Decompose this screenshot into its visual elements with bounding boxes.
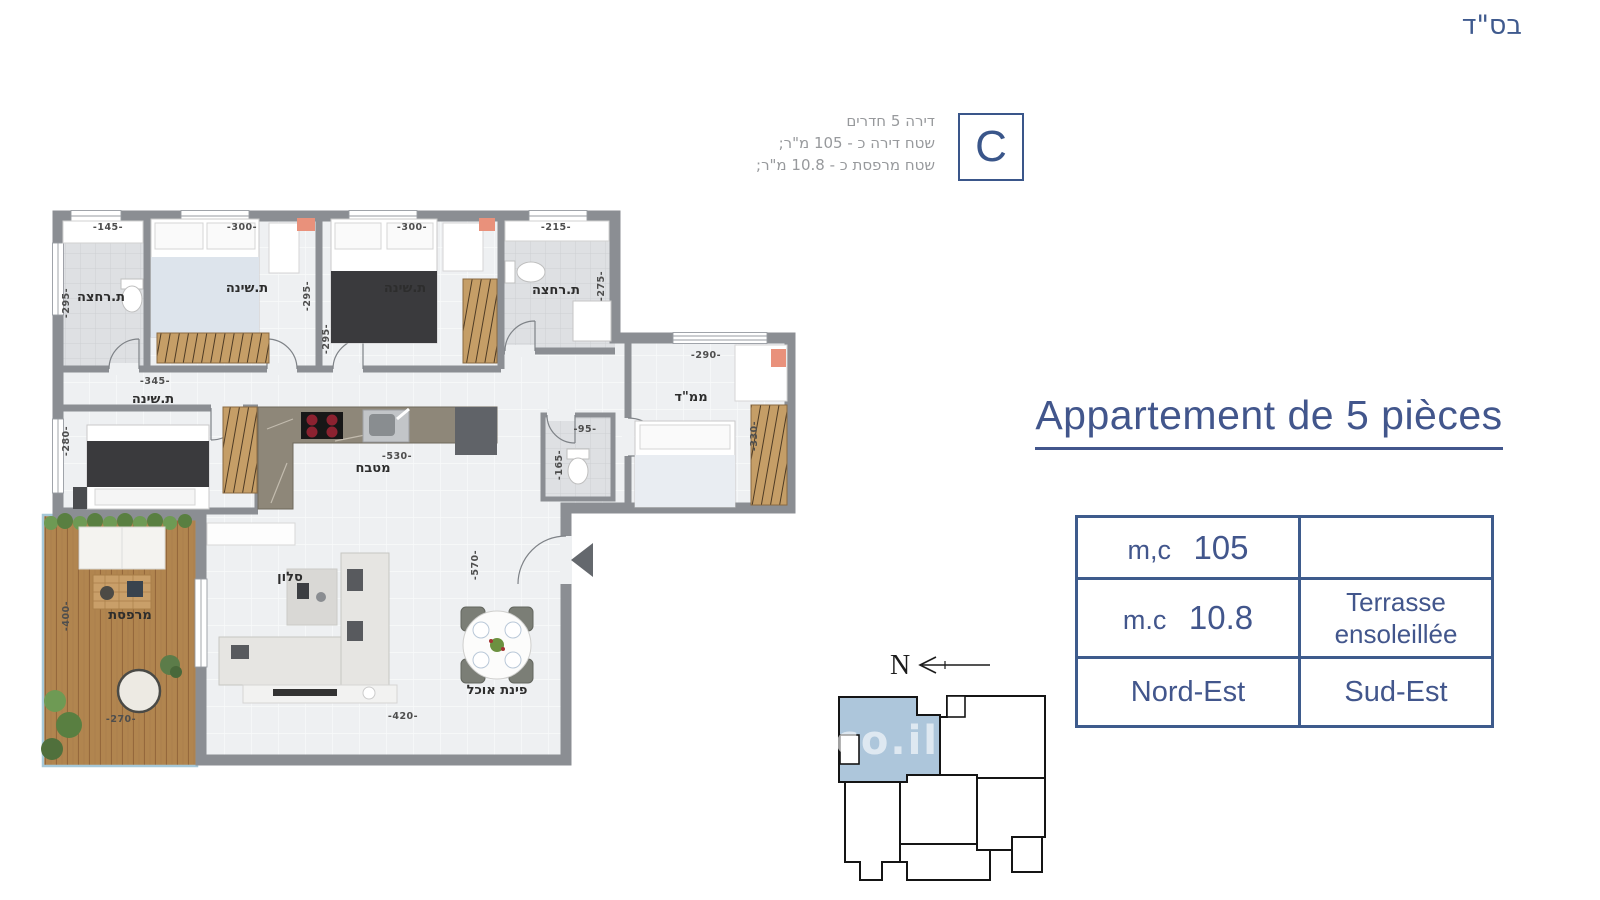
terrace-line2: ensoleillée (1302, 618, 1490, 651)
terrace-cell: Terrasse ensoleillée (1300, 579, 1493, 658)
dim-bed2-h: -295- (321, 324, 332, 354)
room-label-kitchen: מטבח (355, 461, 390, 476)
area-cell: m,c 105 (1077, 517, 1300, 579)
terrace-area-cell: m.c 10.8 (1077, 579, 1300, 658)
dim-bath2-h: -275- (596, 271, 607, 301)
north-arrow: N (890, 650, 990, 681)
terrace-line1: Terrasse (1302, 586, 1490, 619)
key-plan: N .co.il (812, 632, 1062, 894)
room-label-mamad: ממ"ד (674, 390, 707, 405)
dim-bed1-w: -300- (227, 222, 257, 233)
area-label: m,c (1127, 535, 1171, 565)
unit-info-line3: שטח מרפסת כ - 10.8 מ"ר; (635, 154, 935, 176)
orientation-right-cell: Sud-Est (1300, 658, 1493, 727)
orientation-left-cell: Nord-Est (1077, 658, 1300, 727)
terrace-area-value: 10.8 (1189, 599, 1253, 636)
empty-cell (1300, 517, 1493, 579)
dim-terrace-w: -270- (106, 714, 136, 725)
watermark: .co.il (818, 718, 939, 764)
dim-living-h: -570- (470, 550, 481, 580)
area-value: 105 (1193, 529, 1248, 566)
unit-info-block: דירה 5 חדרים שטח דירה כ - 105 מ"ר; שטח מ… (635, 110, 935, 176)
room-label-bath1: ת.רחצה (77, 290, 125, 305)
unit-info-line2: שטח דירה כ - 105 מ"ר; (635, 132, 935, 154)
dim-mamad-h: -330- (749, 421, 760, 451)
entrance-arrow-icon (571, 543, 593, 577)
room-label-bed1: ת.שינה (226, 281, 268, 296)
table-row: m.c 10.8 Terrasse ensoleillée (1077, 579, 1493, 658)
floorplan-page: בס"ד דירה 5 חדרים שטח דירה כ - 105 מ"ר; … (0, 0, 1600, 900)
dim-bath1-w: -145- (93, 222, 123, 233)
unit-letter-box: C (958, 113, 1024, 181)
dim-bed1-h: -295- (302, 281, 313, 311)
dim-wc-w: -95- (573, 424, 596, 435)
dim-bed3-w: -345- (140, 376, 170, 387)
dim-wc-h: -165- (554, 450, 565, 480)
room-label-living: סלון (277, 570, 303, 585)
dim-kitchen-w: -530- (382, 451, 412, 462)
dim-bed3-h: -280- (61, 426, 72, 456)
dim-bed2-w: -300- (397, 222, 427, 233)
room-label-bed2: ת.שינה (384, 281, 426, 296)
spec-table: m,c 105 m.c 10.8 Terrasse ensoleillée No… (1075, 515, 1494, 728)
dining-set (461, 607, 533, 683)
terrace-area-label: m.c (1123, 605, 1167, 635)
dim-terrace-h: -400- (61, 601, 72, 631)
dim-living-w: -420- (388, 711, 418, 722)
dim-bath1-h: -295- (61, 288, 72, 318)
bsd-text: בס"ד (1462, 10, 1522, 41)
unit-letter: C (975, 122, 1007, 172)
dim-bath2-w: -215- (541, 222, 571, 233)
table-row: Nord-Est Sud-Est (1077, 658, 1493, 727)
floor-plan: ת.רחצה ת.שינה ת.שינה ת.רחצה ממ"ד ת.שינה … (35, 193, 805, 781)
page-title: Appartement de 5 pièces (1016, 392, 1522, 450)
dim-mamad-w: -290- (691, 350, 721, 361)
room-label-bath2: ת.רחצה (532, 283, 580, 298)
room-label-dining: פינת אוכל (467, 683, 528, 698)
room-label-bed3: ת.שינה (132, 392, 174, 407)
table-row: m,c 105 (1077, 517, 1493, 579)
north-label: N (890, 650, 910, 681)
room-label-terrace: מרפסת (108, 608, 152, 623)
unit-info-line1: דירה 5 חדרים (635, 110, 935, 132)
